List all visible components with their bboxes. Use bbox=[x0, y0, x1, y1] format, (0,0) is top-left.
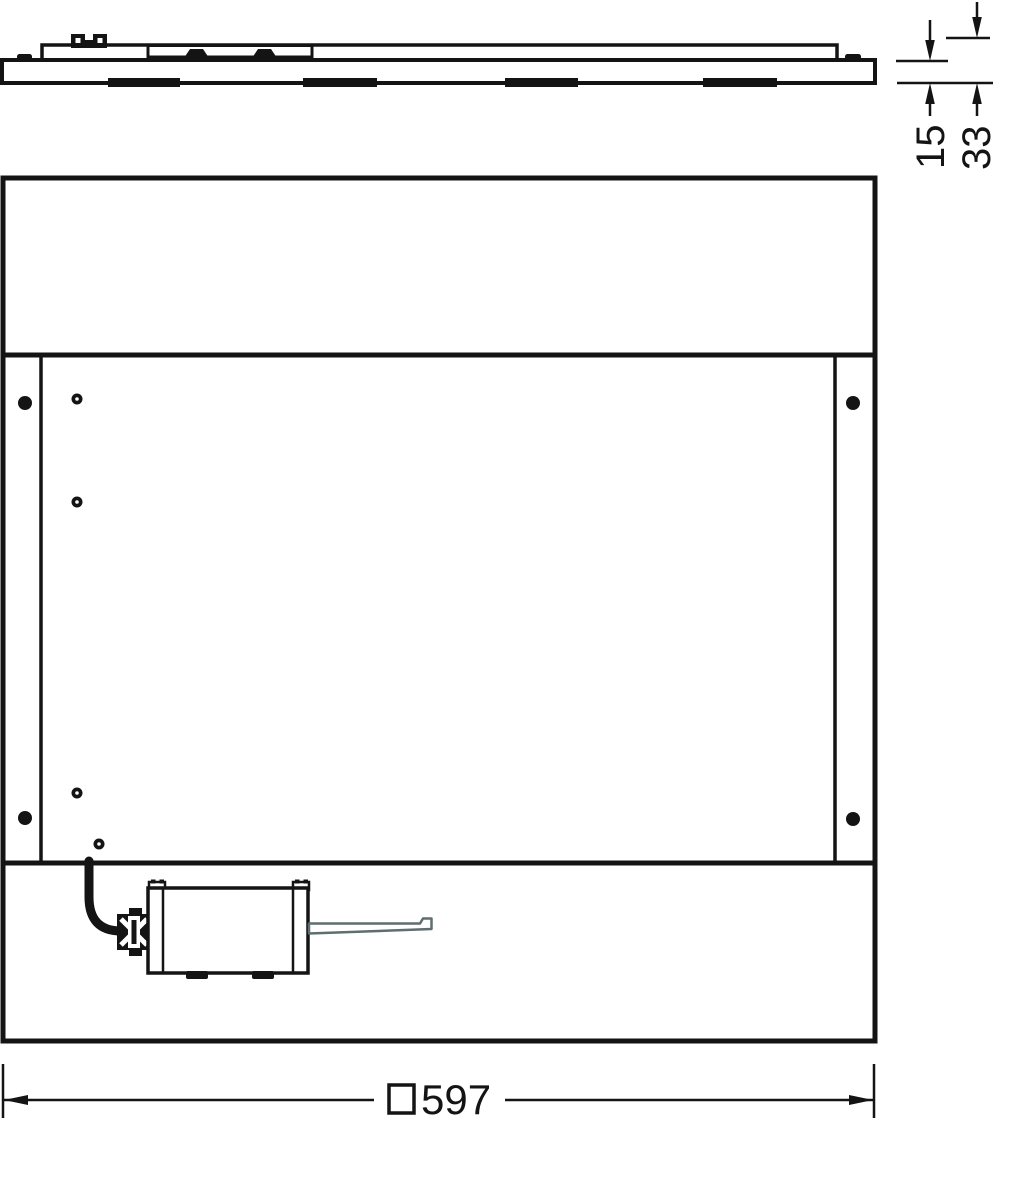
hole-4-center bbox=[97, 842, 101, 846]
dim597-arrowhead-left bbox=[4, 1095, 28, 1105]
side-pad-1 bbox=[108, 78, 180, 87]
side-view bbox=[2, 34, 875, 87]
panel-luminaire-drawing: 15 33 bbox=[0, 0, 1021, 1200]
driver-box bbox=[148, 880, 309, 980]
width-dimension: 597 bbox=[3, 1064, 874, 1123]
rear-view bbox=[1, 178, 877, 1041]
connector-pin bbox=[132, 920, 137, 944]
driver-body bbox=[148, 888, 308, 973]
dim33-top-arrowhead bbox=[972, 17, 982, 38]
dim597-label: 597 bbox=[421, 1076, 491, 1123]
clip-notch-left bbox=[76, 38, 81, 43]
driver-tab-screw-1 bbox=[151, 880, 156, 884]
dim597-arrowhead-right bbox=[849, 1095, 873, 1105]
screw-bottom-right bbox=[846, 812, 860, 826]
side-driver-section bbox=[148, 46, 312, 58]
height-dimensions: 15 33 bbox=[896, 2, 999, 170]
driver-tab-screw-3 bbox=[295, 880, 300, 884]
dim33-bottom-arrowhead bbox=[972, 83, 982, 104]
side-pad-3 bbox=[505, 78, 578, 87]
side-pad-2 bbox=[303, 78, 377, 87]
cable-connector bbox=[117, 908, 151, 956]
side-end-bump-right bbox=[845, 54, 861, 61]
hole-3-center bbox=[75, 791, 79, 795]
dim15-label: 15 bbox=[909, 125, 953, 170]
technical-drawing-page: 15 33 bbox=[0, 0, 1021, 1200]
side-pad-4 bbox=[703, 78, 777, 87]
hole-2-center bbox=[75, 500, 79, 504]
screw-bottom-left bbox=[18, 811, 32, 825]
screw-top-left bbox=[18, 396, 32, 410]
side-mounting-clips bbox=[71, 34, 107, 48]
square-symbol bbox=[389, 1085, 414, 1113]
side-end-bump-left bbox=[17, 54, 32, 61]
driver-tab-screw-4 bbox=[304, 880, 309, 884]
screw-top-right bbox=[846, 396, 860, 410]
driver-bottom-foot-left bbox=[186, 971, 208, 979]
hole-1-center bbox=[75, 397, 79, 401]
driver-bottom-foot-right bbox=[252, 971, 274, 979]
dim33-label: 33 bbox=[955, 126, 999, 171]
driver-tab-screw-2 bbox=[160, 880, 165, 884]
dim15-bottom-arrowhead bbox=[925, 83, 935, 104]
clip-notch-right bbox=[98, 38, 103, 43]
dim15-top-arrowhead bbox=[925, 40, 935, 61]
